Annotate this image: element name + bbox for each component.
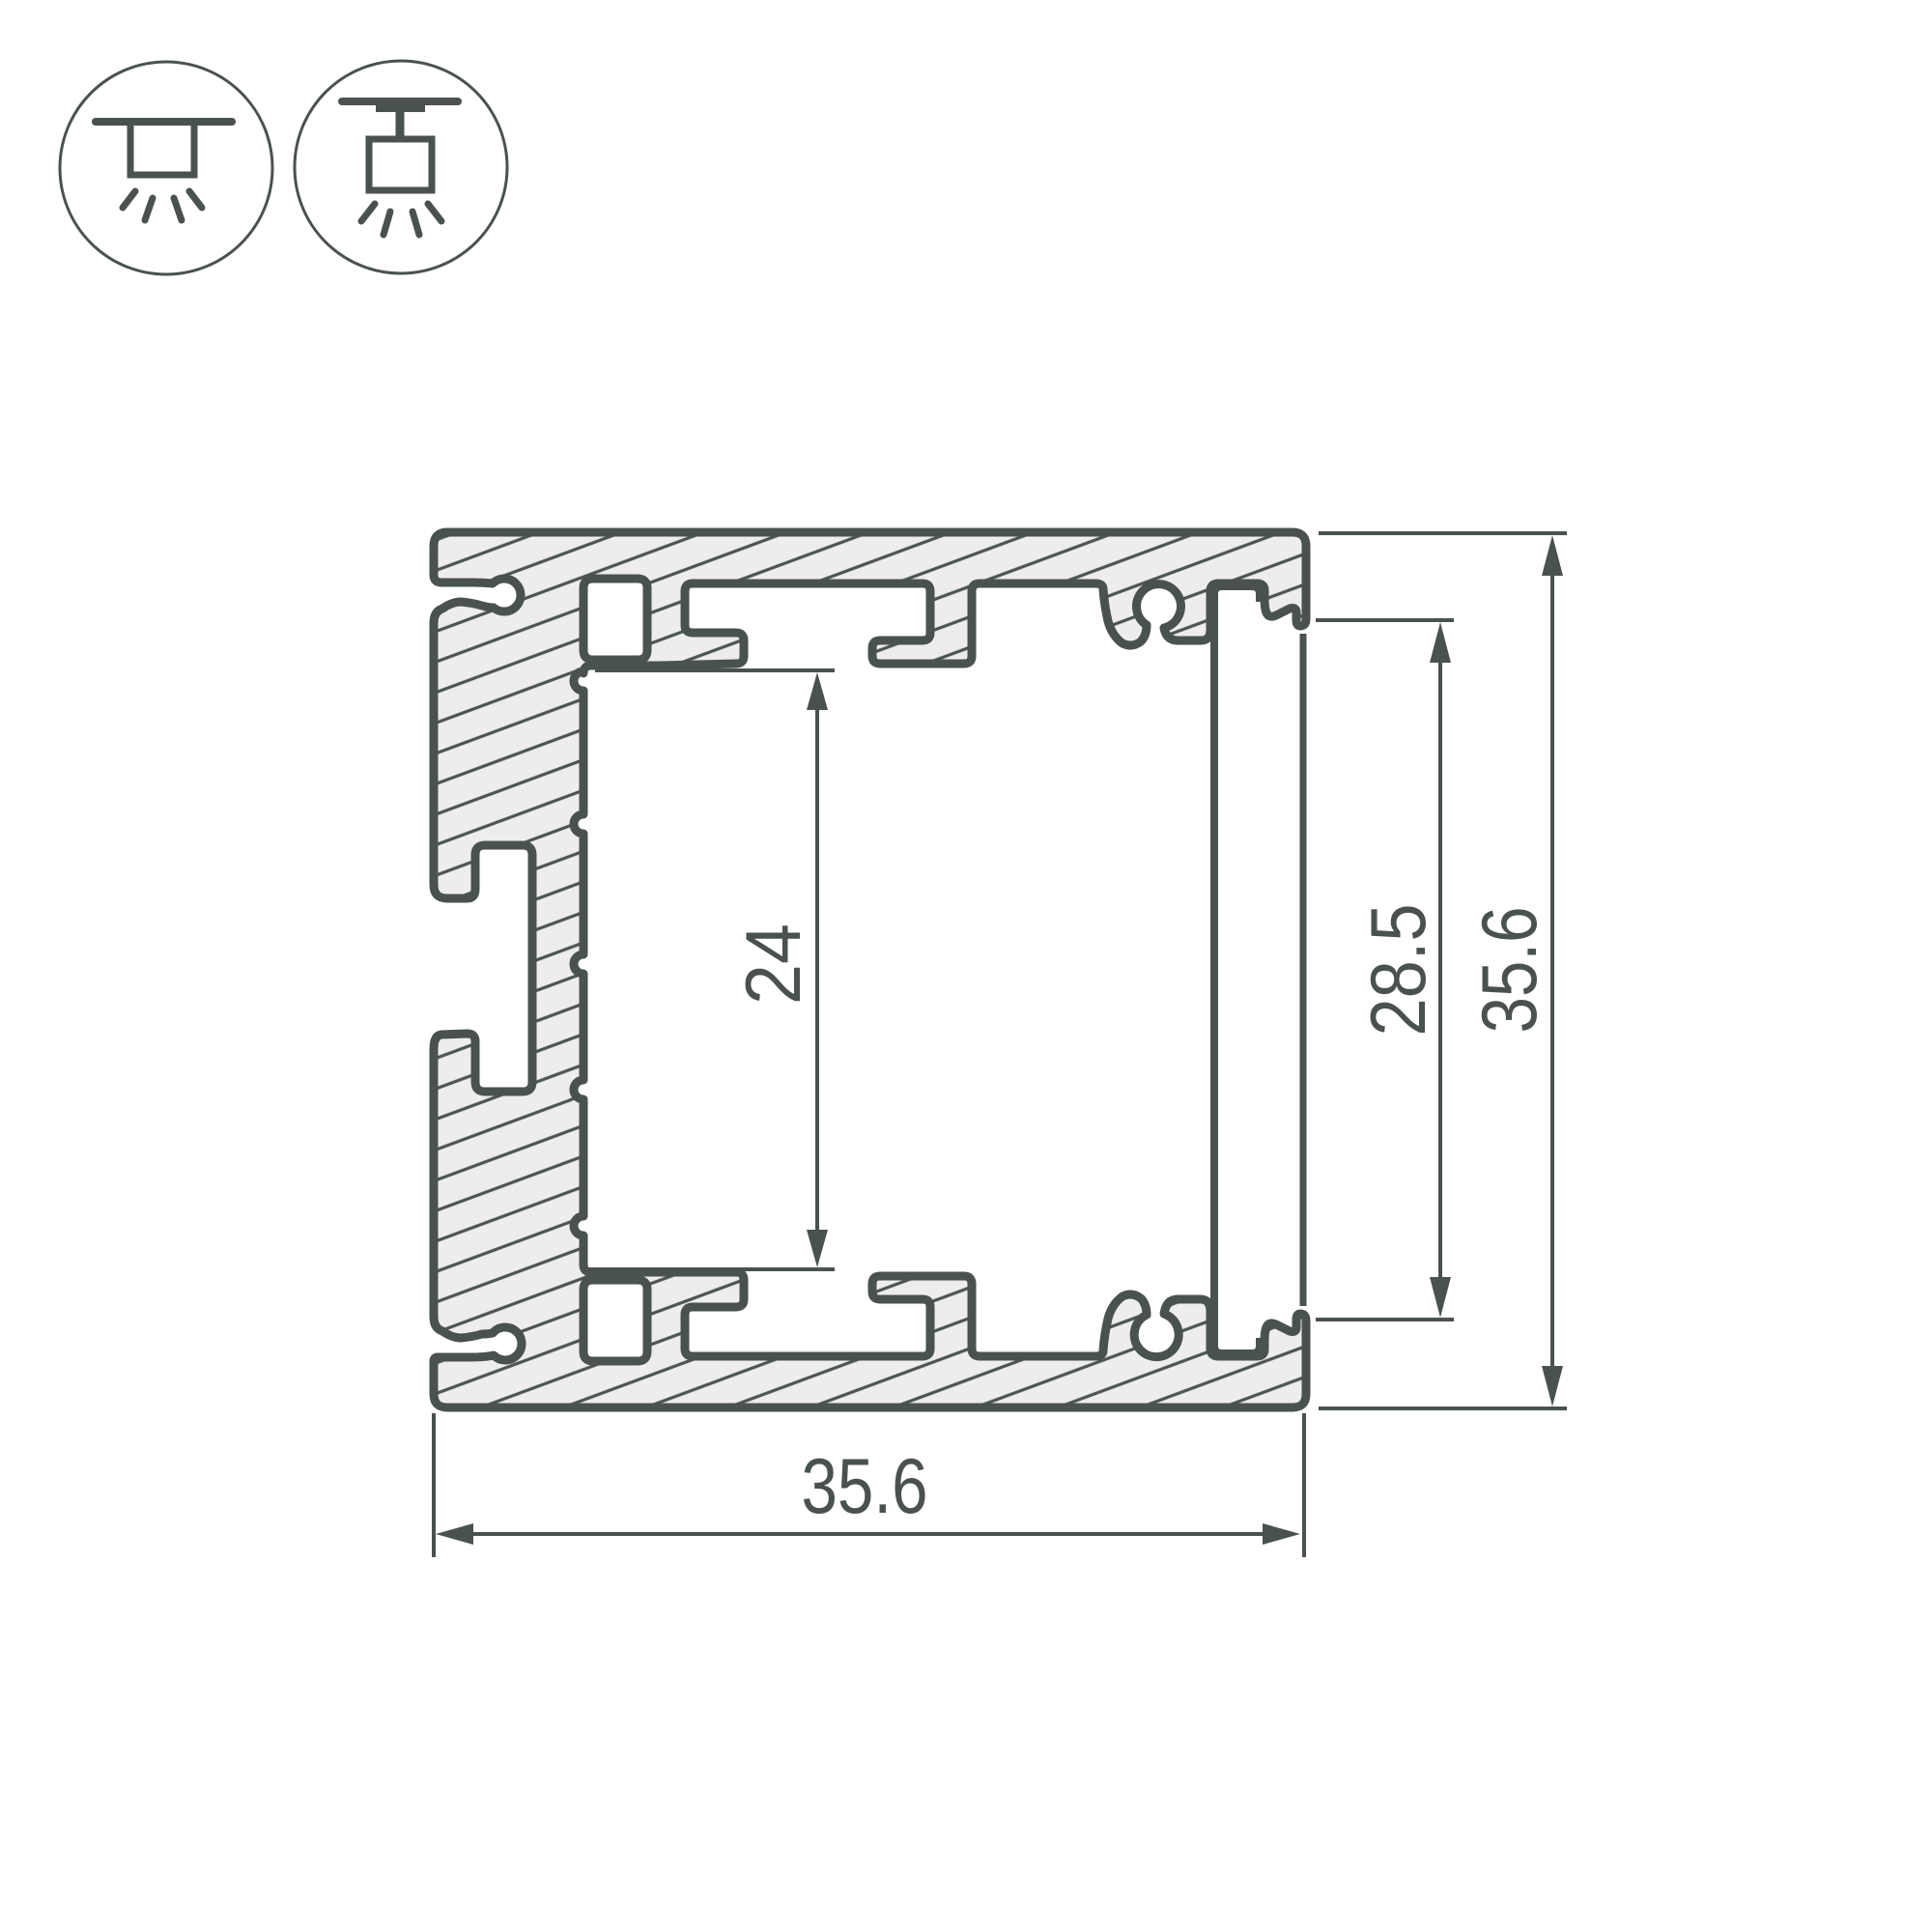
- svg-text:24: 24: [730, 923, 817, 1005]
- svg-text:28.5: 28.5: [1355, 904, 1442, 1037]
- svg-text:35.6: 35.6: [802, 1443, 928, 1530]
- svg-text:35.6: 35.6: [1466, 907, 1553, 1034]
